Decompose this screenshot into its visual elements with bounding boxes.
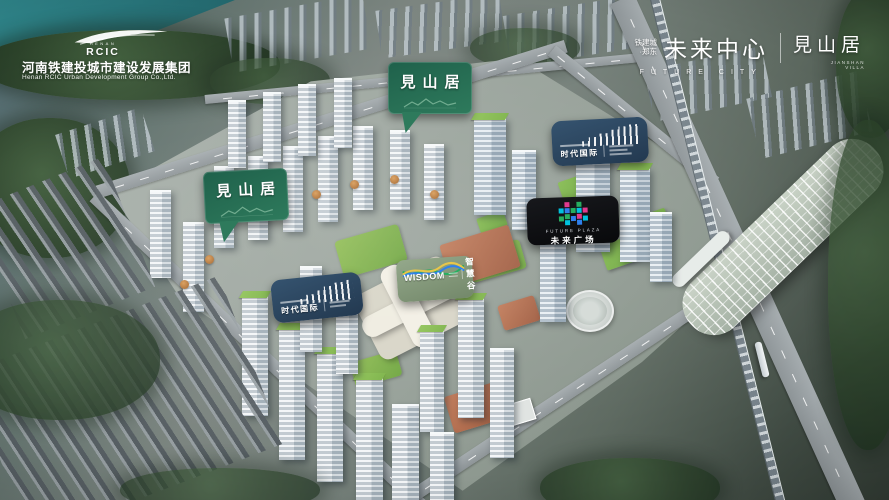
autumn-tree [205, 255, 214, 264]
office-tower [620, 168, 650, 262]
decor [329, 299, 349, 303]
jianshanju-title: 見山居 [793, 30, 865, 57]
pixel-cell [577, 220, 582, 225]
billboard-title: 时代国际 [281, 302, 320, 317]
future-city-subtitle: FUTURE CITY [634, 69, 768, 76]
residential-tower [424, 144, 444, 220]
tree-cluster [120, 468, 320, 500]
pixel-cell [565, 214, 570, 219]
office-tower [540, 240, 566, 322]
jianshanju-subtitle: JIANSHAN VILLA [793, 60, 865, 70]
residential-tower [150, 190, 171, 278]
logo-region-label: HENAN [72, 41, 134, 46]
decor-text-lines [609, 142, 634, 157]
pixel-cell [559, 216, 564, 221]
pixel-cell [571, 216, 576, 221]
decor [330, 304, 346, 308]
brand-prefix: 铁建城 ·郑东 [634, 38, 657, 57]
pixel-cell [565, 208, 570, 213]
autumn-tree [350, 180, 359, 189]
pixel-cell [577, 214, 582, 219]
billboard-title: 时代国际 [560, 147, 599, 160]
mountain-ridge-icon [402, 96, 458, 109]
billboard-caption: 时代国际 [280, 295, 350, 317]
residential-tower [430, 432, 454, 500]
pixel-cell [565, 220, 570, 225]
brand-prefix-line1: 铁建城 [634, 38, 657, 47]
pixel-cell [583, 207, 588, 212]
autumn-tree [390, 175, 399, 184]
bubble-label: 見山居 [203, 177, 288, 202]
pixel-cell [571, 208, 576, 213]
residential-tower [318, 136, 338, 222]
residential-tower [356, 378, 383, 500]
corporate-logo: HENAN RCIC 河南铁建投城市建设发展集团 Henan RCIC Urba… [22, 26, 232, 86]
divider [323, 299, 325, 311]
autumn-tree [430, 190, 439, 199]
decor [610, 152, 632, 155]
jianshanju-group: 見山居 JIANSHAN VILLA [793, 30, 865, 70]
brand-prefix-line2: ·郑东 [634, 47, 657, 56]
decor-text-lines [448, 271, 458, 279]
billboard-title-en: WISDOM [404, 270, 446, 283]
mountain-ridge-icon [218, 203, 275, 219]
decor [560, 144, 588, 147]
project-bubble: 見山居 [388, 62, 472, 114]
office-tower [474, 118, 506, 215]
residential-tower [458, 298, 484, 418]
times-international-billboard: 时代国际 [551, 117, 649, 167]
tree-cluster [540, 458, 720, 500]
decor [449, 275, 458, 277]
future-plaza-logo-icon [554, 201, 591, 226]
residential-tower [334, 78, 352, 148]
decor-text-lines [329, 297, 350, 309]
pixel-cell [576, 202, 581, 207]
residential-tower [490, 348, 514, 458]
future-center-group: 铁建城 ·郑东 未来中心 FUTURE CITY [634, 30, 768, 76]
residential-tower [228, 100, 246, 168]
bubble-label: 見山居 [388, 71, 472, 92]
future-plaza-billboard: FUTURE PLAZA 未来广场 [526, 195, 620, 245]
pixel-cell [583, 215, 588, 220]
pixel-cell [577, 208, 582, 213]
billboard-title-group: 时代国际 [560, 143, 599, 160]
residential-tower [353, 126, 373, 210]
title-divider [780, 33, 781, 63]
circular-plaza [566, 290, 614, 332]
company-name-en: Henan RCIC Urban Development Group Co.,L… [22, 74, 176, 81]
residential-tower [263, 92, 281, 162]
wisdom-valley-billboard: WISDOM 智慧谷 [396, 255, 475, 302]
pixel-cell [564, 202, 569, 207]
residential-tower [392, 404, 419, 500]
decor [609, 144, 633, 147]
project-title-lockup: 铁建城 ·郑东 未来中心 FUTURE CITY 見山居 JIANSHAN VI… [634, 30, 865, 76]
rcic-wordmark: HENAN RCIC [72, 41, 134, 58]
future-center-title: 未来中心 [664, 30, 768, 64]
office-tower [650, 212, 672, 282]
residential-tower [390, 130, 410, 210]
pixel-cell [559, 208, 564, 213]
billboard-title-group: 时代国际 [280, 298, 319, 317]
autumn-tree [312, 190, 321, 199]
divider [603, 144, 605, 156]
billboard-caption: WISDOM 智慧谷 [403, 255, 478, 296]
decor [609, 148, 627, 151]
billboard-caption: 时代国际 [560, 141, 634, 160]
jianshanju-subtitle-line2: VILLA [845, 65, 865, 70]
residential-tower [420, 330, 444, 432]
aerial-city-render: 見山居 見山居 时代国际 [0, 0, 889, 500]
project-bubble: 見山居 [203, 168, 290, 224]
divider [461, 269, 462, 279]
future-center-row: 铁建城 ·郑东 未来中心 [634, 30, 768, 64]
decor [449, 272, 458, 274]
residential-tower [298, 84, 316, 156]
